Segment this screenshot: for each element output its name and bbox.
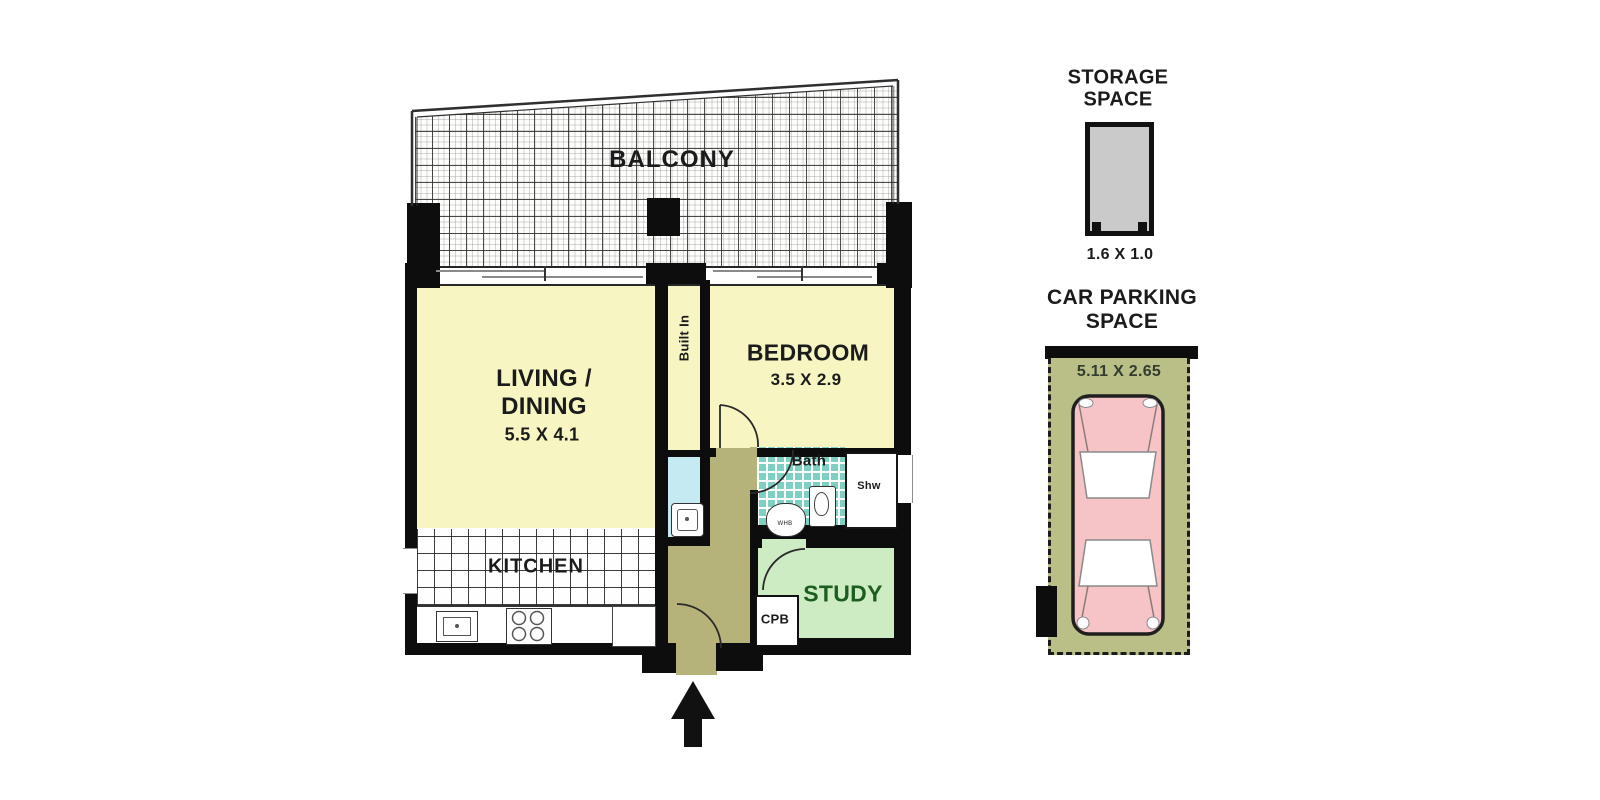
kitchen-sink bbox=[436, 611, 478, 642]
wall-segment bbox=[668, 537, 710, 546]
bedroom-dimensions: 3.5 X 2.9 bbox=[771, 370, 842, 390]
balcony-label: BALCONY bbox=[609, 146, 735, 174]
shower-label: Shw bbox=[857, 480, 881, 492]
hallway-lower bbox=[668, 546, 750, 643]
balcony-floor bbox=[415, 80, 898, 268]
storage-title-line1: STORAGE bbox=[1068, 67, 1169, 90]
study-door-opening bbox=[762, 539, 806, 548]
living-label-line1: LIVING / bbox=[496, 365, 592, 393]
basin-label: WHB bbox=[778, 521, 793, 527]
wall-segment bbox=[405, 266, 417, 548]
entry-opening bbox=[676, 641, 717, 675]
study-label: STUDY bbox=[803, 581, 882, 608]
built-in-label: Built In bbox=[677, 315, 692, 361]
storage-space-box bbox=[1085, 122, 1154, 236]
parking-pillar bbox=[1036, 586, 1057, 637]
wall-segment bbox=[655, 280, 668, 643]
stove-cooktop bbox=[506, 608, 552, 645]
laundry-tub bbox=[671, 503, 704, 537]
floorplan-canvas: BALCONY LIVING / DINING 5.5 X 4.1 BEDROO… bbox=[0, 0, 1600, 800]
kitchen-appliance bbox=[612, 606, 656, 647]
storage-title-line2: SPACE bbox=[1084, 89, 1153, 112]
toilet bbox=[809, 486, 836, 527]
living-label-line2: DINING bbox=[501, 393, 587, 421]
wall-segment bbox=[667, 450, 700, 457]
bedroom-label: BEDROOM bbox=[747, 340, 869, 367]
wall-segment bbox=[642, 643, 676, 673]
kitchen-window bbox=[403, 548, 417, 594]
cupboard-label: CPB bbox=[761, 612, 789, 627]
balcony-column bbox=[647, 198, 680, 236]
parking-title-line2: SPACE bbox=[1086, 310, 1158, 334]
storage-dimensions: 1.6 X 1.0 bbox=[1087, 246, 1154, 264]
bath-label: Bath bbox=[792, 453, 827, 470]
wall-segment bbox=[710, 448, 716, 457]
hallway-upper bbox=[710, 457, 750, 546]
wall-segment bbox=[750, 490, 758, 527]
living-dimensions: 5.5 X 4.1 bbox=[505, 425, 580, 446]
parking-dimensions: 5.11 X 2.65 bbox=[1077, 363, 1161, 381]
wall-segment bbox=[894, 266, 911, 455]
wash-basin bbox=[766, 503, 806, 537]
kitchen-label: KITCHEN bbox=[488, 556, 584, 579]
parking-title-line1: CAR PARKING bbox=[1047, 286, 1197, 310]
car-parking-area bbox=[1048, 358, 1190, 655]
entry-arrow-icon bbox=[671, 681, 715, 747]
built-in-wardrobe bbox=[667, 280, 700, 450]
